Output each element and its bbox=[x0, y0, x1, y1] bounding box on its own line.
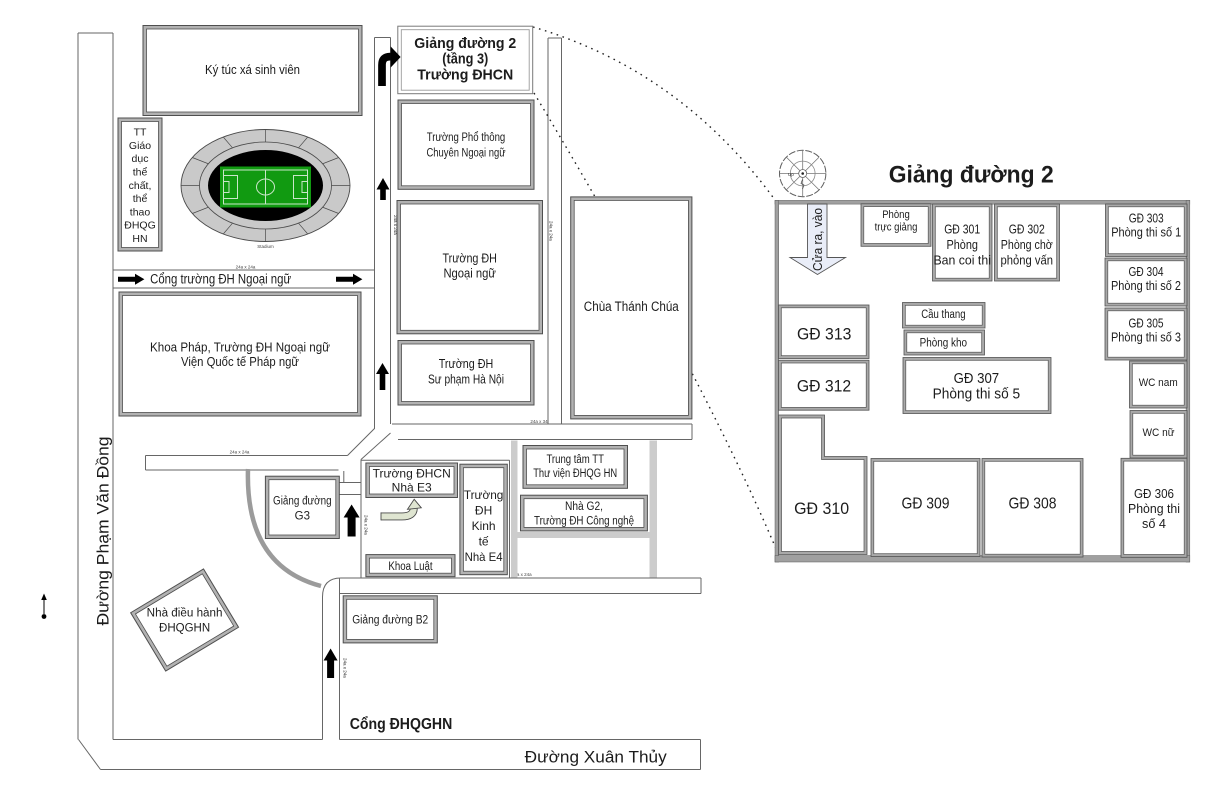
svg-text:WC nam: WC nam bbox=[1139, 377, 1178, 389]
svg-text:24a x 24a: 24a x 24a bbox=[236, 265, 256, 270]
svg-text:Phòng thi số 1: Phòng thi số 1 bbox=[1111, 226, 1181, 240]
svg-text:ĐH: ĐH bbox=[475, 504, 492, 518]
svg-text:số 4: số 4 bbox=[1142, 517, 1166, 531]
svg-text:Trung tâm TT: Trung tâm TT bbox=[546, 454, 604, 466]
svg-text:Chùa Thánh Chúa: Chùa Thánh Chúa bbox=[584, 299, 679, 314]
svg-text:Phòng: Phòng bbox=[946, 238, 978, 252]
svg-text:Kinh: Kinh bbox=[472, 519, 496, 533]
svg-text:GĐ 309: GĐ 309 bbox=[902, 496, 950, 513]
svg-text:GĐ 306: GĐ 306 bbox=[1134, 487, 1174, 501]
svg-text:tế: tế bbox=[479, 535, 489, 549]
svg-text:Giảng đường B2: Giảng đường B2 bbox=[352, 615, 428, 627]
svg-text:Trường ĐHCN: Trường ĐHCN bbox=[417, 66, 513, 83]
svg-text:Cửa ra, vào: Cửa ra, vào bbox=[811, 208, 825, 271]
svg-text:Ban coi thi: Ban coi thi bbox=[933, 254, 991, 268]
svg-text:Cầu thang: Cầu thang bbox=[921, 309, 965, 321]
svg-text:Chuyên Ngoại ngữ: Chuyên Ngoại ngữ bbox=[427, 148, 506, 160]
svg-text:Cổng ĐHQGHN: Cổng ĐHQGHN bbox=[350, 716, 453, 733]
svg-text:GĐ 302: GĐ 302 bbox=[1009, 223, 1045, 237]
svg-text:GĐ 312: GĐ 312 bbox=[797, 378, 851, 396]
svg-text:GĐ 303: GĐ 303 bbox=[1129, 212, 1164, 226]
svg-text:Trường ĐH: Trường ĐH bbox=[442, 251, 497, 266]
svg-text:Nhà điều hành: Nhà điều hành bbox=[147, 607, 223, 619]
svg-text:GĐ 313: GĐ 313 bbox=[797, 325, 851, 343]
svg-text:Khoa Pháp, Trường ĐH Ngoại ngữ: Khoa Pháp, Trường ĐH Ngoại ngữ bbox=[150, 340, 330, 355]
svg-text:24a x 24a: 24a x 24a bbox=[343, 658, 348, 678]
svg-text:Khoa Luật: Khoa Luật bbox=[388, 561, 433, 573]
svg-text:24a x 24a: 24a x 24a bbox=[364, 515, 369, 535]
svg-text:trực giảng: trực giảng bbox=[875, 222, 918, 234]
svg-text:Trường Phổ thông: Trường Phổ thông bbox=[427, 132, 506, 144]
svg-text:Phòng chờ: Phòng chờ bbox=[1001, 238, 1053, 252]
svg-text:Cổng trường ĐH Ngoại ngữ: Cổng trường ĐH Ngoại ngữ bbox=[150, 271, 291, 286]
svg-text:Phòng kho: Phòng kho bbox=[920, 338, 967, 350]
svg-text:Trường ĐHCN: Trường ĐHCN bbox=[373, 466, 451, 480]
svg-text:Trường: Trường bbox=[464, 488, 504, 502]
svg-text:Viện Quốc tế Pháp ngữ: Viện Quốc tế Pháp ngữ bbox=[181, 354, 299, 369]
svg-text:GĐ 305: GĐ 305 bbox=[1129, 316, 1164, 330]
svg-text:Up: Up bbox=[788, 172, 794, 177]
svg-text:G3: G3 bbox=[295, 510, 310, 522]
svg-text:GĐ 304: GĐ 304 bbox=[1129, 265, 1164, 279]
svg-text:WC nữ: WC nữ bbox=[1143, 427, 1176, 439]
svg-text:Sư phạm Hà Nội: Sư phạm Hà Nội bbox=[428, 372, 504, 387]
svg-text:GĐ 308: GĐ 308 bbox=[1009, 496, 1057, 513]
svg-text:ĐHQGHN: ĐHQGHN bbox=[159, 622, 210, 634]
svg-text:Ký túc xá sinh viên: Ký túc xá sinh viên bbox=[205, 63, 300, 77]
svg-text:Phòng thi số 3: Phòng thi số 3 bbox=[1111, 331, 1181, 345]
svg-text:Đường Xuân Thủy: Đường Xuân Thủy bbox=[525, 748, 667, 767]
svg-text:24a x 24a: 24a x 24a bbox=[230, 450, 250, 455]
svg-text:Ngoại ngữ: Ngoại ngữ bbox=[443, 266, 496, 281]
svg-text:Phòng thi số 2: Phòng thi số 2 bbox=[1111, 279, 1181, 293]
svg-text:Nhà E4: Nhà E4 bbox=[465, 550, 503, 564]
svg-text:24a x 34: 24a x 34 bbox=[530, 419, 548, 424]
svg-text:24a x 24a: 24a x 24a bbox=[549, 221, 554, 241]
svg-text:Giảng đường 2: Giảng đường 2 bbox=[414, 35, 516, 52]
svg-text:phỏng vấn: phỏng vấn bbox=[1001, 254, 1054, 268]
svg-text:Thư viện ĐHQG HN: Thư viện ĐHQG HN bbox=[533, 468, 617, 480]
svg-text:Giảng đường 2: Giảng đường 2 bbox=[889, 161, 1054, 188]
svg-text:Phòng: Phòng bbox=[882, 209, 910, 221]
svg-text:Trường ĐH: Trường ĐH bbox=[439, 356, 494, 371]
svg-text:Nhà G2,: Nhà G2, bbox=[565, 501, 603, 513]
svg-text:Stadium: Stadium bbox=[257, 244, 274, 249]
svg-text:Nhà E3: Nhà E3 bbox=[392, 481, 432, 495]
svg-text:TTGiáodụcthểchất,thểthaoĐHQGHN: TTGiáodụcthểchất,thểthaoĐHQGHN bbox=[124, 127, 156, 245]
svg-text:(tầng 3): (tầng 3) bbox=[442, 51, 488, 68]
svg-text:Trường ĐH Công nghệ: Trường ĐH Công nghệ bbox=[534, 516, 634, 528]
svg-text:Phòng thi số 5: Phòng thi số 5 bbox=[933, 386, 1021, 403]
svg-text:Đường Phạm Văn Đồng: Đường Phạm Văn Đồng bbox=[95, 437, 113, 626]
svg-text:GĐ 310: GĐ 310 bbox=[794, 500, 849, 518]
svg-text:GĐ 301: GĐ 301 bbox=[944, 223, 980, 237]
svg-text:Giảng đường: Giảng đường bbox=[273, 495, 332, 507]
svg-text:Phòng thi: Phòng thi bbox=[1128, 502, 1180, 516]
svg-text:GĐ 307: GĐ 307 bbox=[954, 370, 1000, 387]
